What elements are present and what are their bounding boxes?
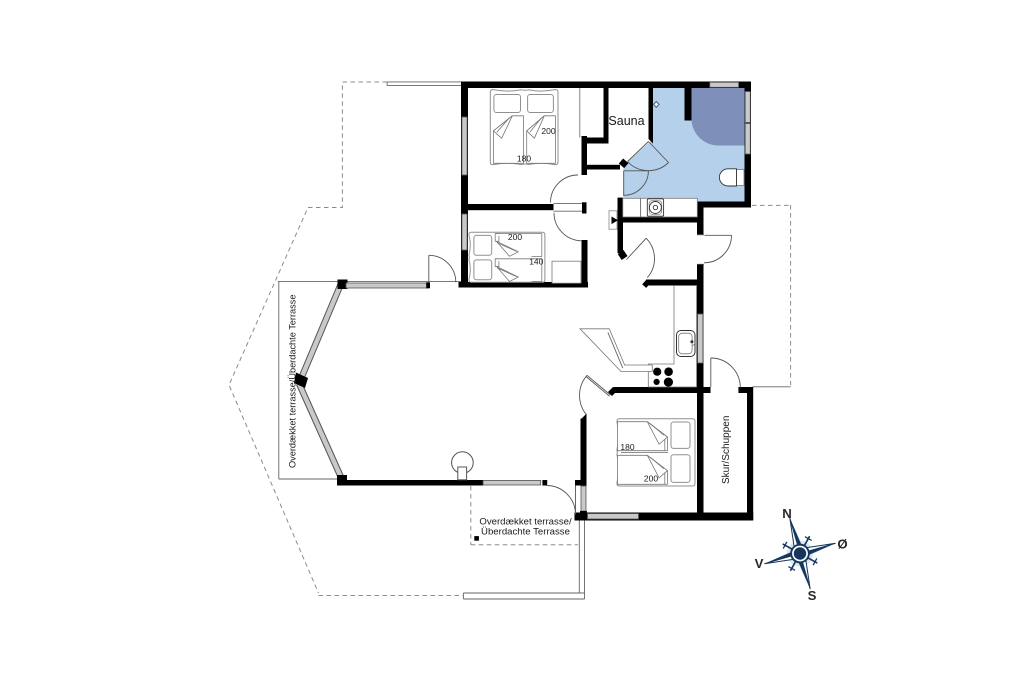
svg-text:Skur/Schuppen: Skur/Schuppen [721, 416, 732, 484]
svg-text:200: 200 [644, 474, 658, 484]
svg-text:Sauna: Sauna [608, 114, 644, 128]
svg-text:200: 200 [541, 126, 555, 136]
svg-text:Ø: Ø [837, 537, 847, 552]
svg-text:180: 180 [517, 154, 531, 164]
svg-text:N: N [782, 506, 792, 521]
svg-text:Überdachte Terrasse: Überdachte Terrasse [481, 527, 570, 538]
svg-text:Overdækket terrasse/Überdachte: Overdækket terrasse/Überdachte Terrasse [288, 295, 298, 468]
svg-text:V: V [755, 556, 764, 571]
svg-text:200: 200 [508, 232, 522, 242]
svg-text:S: S [808, 588, 817, 603]
svg-text:180: 180 [620, 442, 634, 452]
svg-text:140: 140 [529, 257, 543, 267]
